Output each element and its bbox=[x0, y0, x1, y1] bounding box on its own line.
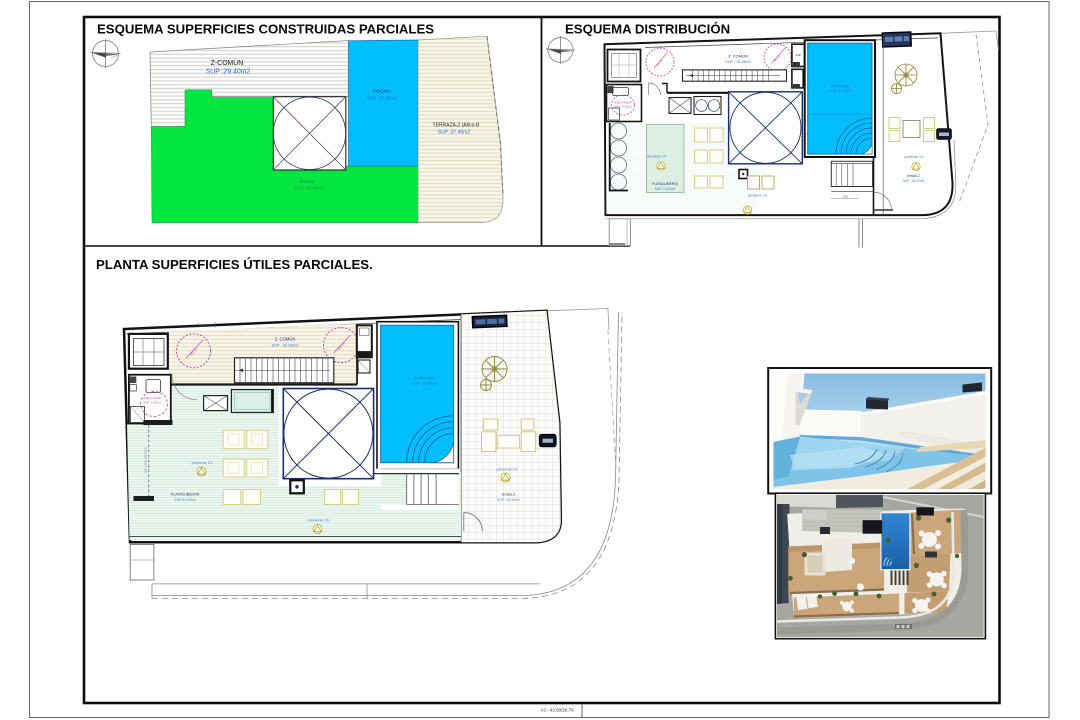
svg-text:Z-COMÚN: Z-COMÚN bbox=[211, 58, 244, 67]
svg-text:ESQUEMA SUPERFICIES CONSTRUIDA: ESQUEMA SUPERFICIES CONSTRUIDAS PARCIALE… bbox=[97, 22, 434, 37]
svg-text:SUP : 69.55m2: SUP : 69.55m2 bbox=[271, 343, 299, 348]
svg-text:SUP. LAMA VERTICAL: SUP. LAMA VERTICAL bbox=[144, 446, 148, 473]
svg-text:lámina agua: lámina agua bbox=[831, 84, 850, 88]
svg-text:PLANTA SUPERFICIES ÚTILES PARC: PLANTA SUPERFICIES ÚTILES PARCIALES. bbox=[96, 257, 373, 272]
svg-text:SUP : 32.20m2: SUP : 32.20m2 bbox=[903, 179, 925, 183]
svg-text:SUP : 76.98m2: SUP : 76.98m2 bbox=[725, 60, 751, 64]
svg-text:terraza 2: terraza 2 bbox=[502, 493, 515, 497]
svg-text:pendiente 1%: pendiente 1% bbox=[748, 194, 768, 198]
svg-text:ESQUEMA DISTRIBUCIÓN: ESQUEMA DISTRIBUCIÓN bbox=[565, 22, 730, 37]
svg-text:PLAYACUBIERTA: PLAYACUBIERTA bbox=[652, 182, 678, 186]
svg-text:pendiente 1%: pendiente 1% bbox=[904, 155, 924, 159]
svg-text:Z. COMÚN: Z. COMÚN bbox=[728, 54, 748, 59]
svg-text:SUP :29.40m2: SUP :29.40m2 bbox=[206, 69, 251, 76]
svg-text:lámina agua: lámina agua bbox=[415, 376, 435, 380]
svg-text:pendiente 1%: pendiente 1% bbox=[192, 461, 213, 465]
svg-text:SUP : 32.20m2: SUP : 32.20m2 bbox=[497, 498, 520, 502]
svg-text:SUB: SUB bbox=[795, 53, 801, 57]
svg-text:SUP :74.20m2: SUP :74.20m2 bbox=[655, 187, 676, 191]
svg-text:SUP :27.36m2: SUP :27.36m2 bbox=[829, 89, 851, 93]
svg-text:Z. COMÚN: Z. COMÚN bbox=[275, 337, 296, 342]
svg-text:pendiente 1%: pendiente 1% bbox=[308, 519, 329, 523]
svg-text:PISCINA: PISCINA bbox=[373, 89, 392, 94]
svg-text:SUP :3.25m2: SUP :3.25m2 bbox=[143, 401, 161, 405]
svg-text:terraza: terraza bbox=[300, 179, 315, 184]
svg-text:A3 - 43.50/26.79: A3 - 43.50/26.79 bbox=[540, 708, 574, 713]
svg-text:SUP :27.36m2: SUP :27.36m2 bbox=[367, 96, 397, 101]
svg-text:terraza 2: terraza 2 bbox=[907, 174, 920, 178]
svg-text:PLAYACUBIERTA: PLAYACUBIERTA bbox=[171, 493, 200, 497]
svg-text:pendiente 1%: pendiente 1% bbox=[497, 468, 518, 472]
svg-text:1.40: 1.40 bbox=[842, 194, 848, 198]
svg-text:TERRAZA-2 (Atico-B: TERRAZA-2 (Atico-B bbox=[433, 123, 481, 129]
svg-text:SUP :37.40m2: SUP :37.40m2 bbox=[438, 130, 471, 136]
svg-text:ASEO-ADAP: ASEO-ADAP bbox=[143, 396, 161, 400]
svg-text:pendiente 1%: pendiente 1% bbox=[647, 155, 667, 159]
svg-text:SUP : 51.60m2: SUP : 51.60m2 bbox=[412, 382, 436, 386]
svg-text:SUP :59.35m2: SUP :59.35m2 bbox=[294, 186, 324, 191]
svg-text:SUP 51.20m2: SUP 51.20m2 bbox=[174, 498, 195, 502]
